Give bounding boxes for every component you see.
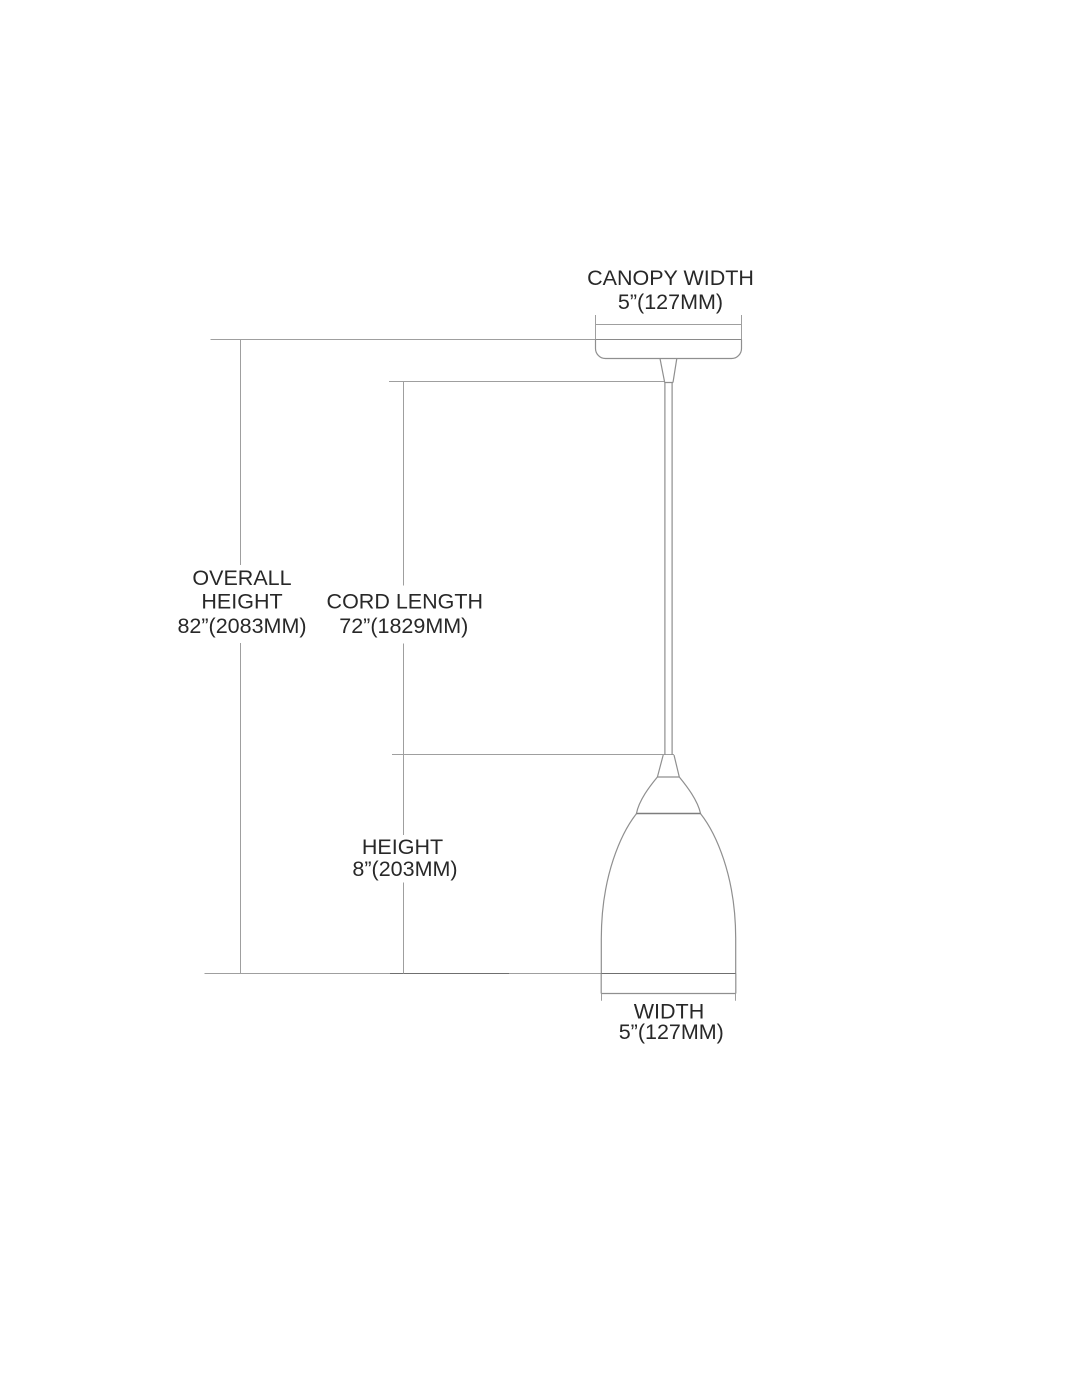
svg-text:CORD LENGTH: CORD LENGTH bbox=[327, 589, 483, 613]
svg-text:8”(203MM): 8”(203MM) bbox=[352, 857, 457, 881]
svg-text:82”(2083MM): 82”(2083MM) bbox=[177, 614, 306, 638]
svg-text:5”(127MM): 5”(127MM) bbox=[618, 290, 723, 314]
svg-text:72”(1829MM): 72”(1829MM) bbox=[339, 614, 468, 638]
svg-text:CANOPY WIDTH: CANOPY WIDTH bbox=[587, 266, 754, 290]
svg-text:OVERALL: OVERALL bbox=[192, 566, 291, 590]
svg-text:5”(127MM): 5”(127MM) bbox=[619, 1020, 724, 1044]
svg-text:HEIGHT: HEIGHT bbox=[201, 589, 282, 613]
svg-text:HEIGHT: HEIGHT bbox=[362, 835, 443, 859]
